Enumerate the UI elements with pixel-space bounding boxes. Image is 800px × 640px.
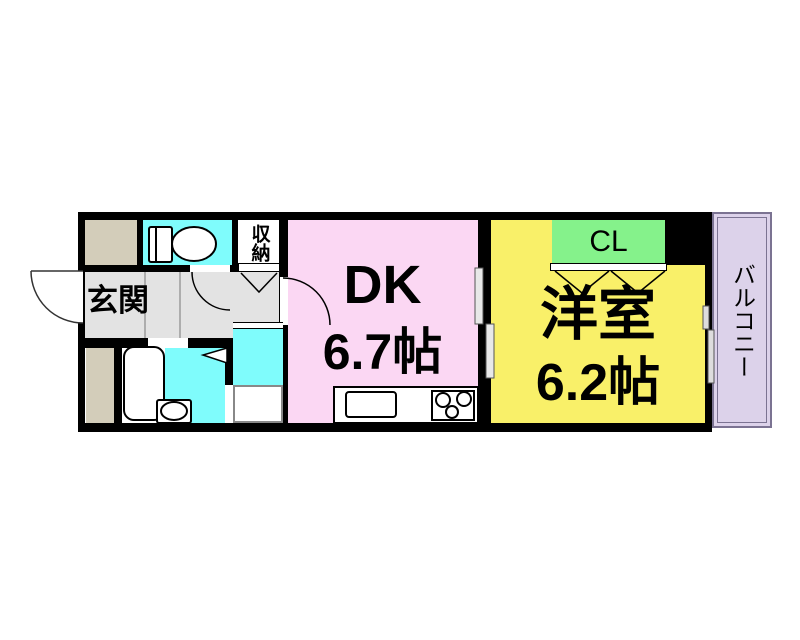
label-western-size: 6.2帖 xyxy=(491,352,705,414)
kitchen-counter xyxy=(334,387,478,423)
label-dk-size: 6.7帖 xyxy=(287,322,478,382)
kitchen-sink xyxy=(346,392,396,417)
washroom-folding-door xyxy=(203,348,227,363)
storage-folding-door xyxy=(241,273,277,292)
label-storage: 収納 xyxy=(240,221,278,265)
label-balcony: バルコニー xyxy=(712,235,772,405)
entrance-step-lines xyxy=(145,272,180,338)
label-western: 洋室 xyxy=(491,280,705,350)
entrance-door-swing xyxy=(31,271,83,323)
label-dk: DK xyxy=(287,255,478,315)
label-entrance: 玄関 xyxy=(86,280,150,320)
toilet-fixture xyxy=(149,227,216,262)
label-closet: CL xyxy=(552,222,665,262)
washbasin-fixture xyxy=(157,400,191,423)
toilet-door-swing xyxy=(192,272,230,310)
